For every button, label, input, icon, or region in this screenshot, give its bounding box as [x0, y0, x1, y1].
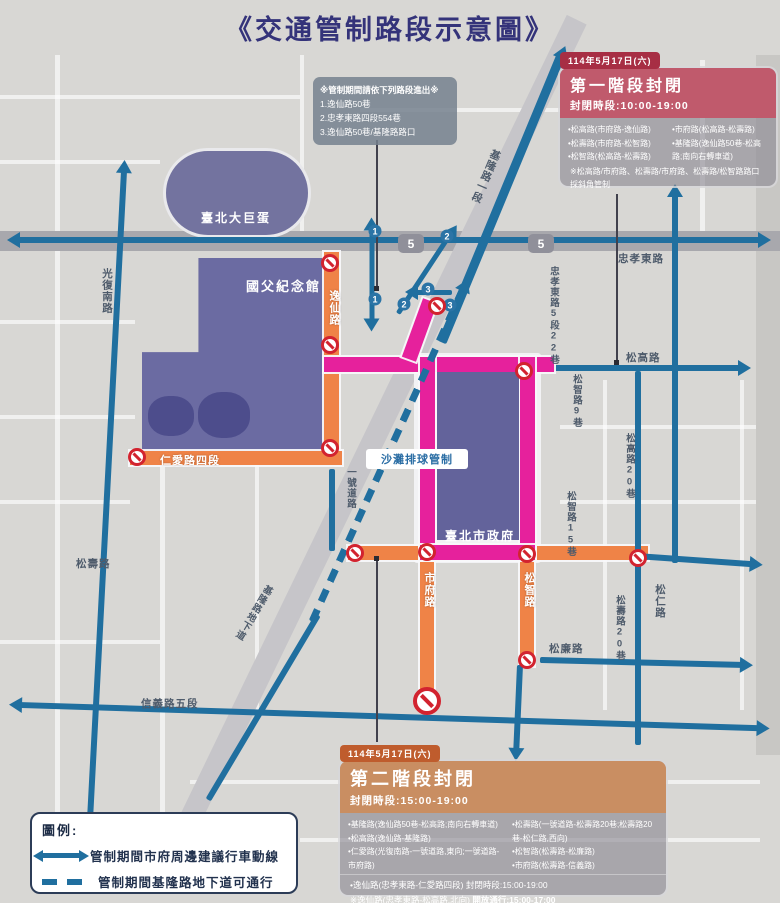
road-label-xinyi5: 信義路五段 [141, 696, 199, 711]
road-label-songshou-west: 松壽路 [76, 556, 111, 571]
road-label-zhongxiao: 忠孝東路 [618, 251, 664, 266]
street-line [0, 500, 130, 504]
no-entry-sign [518, 545, 536, 563]
street-line [160, 460, 165, 860]
phase1-item: •市府路(松高路-松壽路) [672, 123, 768, 137]
no-entry-sign [629, 549, 647, 567]
legend-heading: 圖例: [42, 820, 286, 839]
road-label-yixian: 逸仙路 [326, 290, 342, 326]
route-east-vertical-line [672, 195, 678, 563]
access-note-box: ※管制期間請依下列路段進出※ 1.逸仙路50巷 2.忠孝東路四段554巷 3.逸… [313, 77, 457, 145]
phase1-note: ※松高路/市府路、松壽路/市府路、松壽路/松智路路口採斜角管制 [560, 166, 776, 196]
no-entry-sign [518, 651, 536, 669]
access-badge-1: 1 [369, 225, 382, 238]
legend-box: 圖例: 管制期間市府周邊建議行車動線 管制期間基隆路地下道可通行 [30, 812, 298, 894]
pointer-dot [374, 286, 379, 291]
street-line [0, 415, 135, 419]
street-line [55, 55, 60, 865]
access-badge-1: 1 [369, 293, 382, 306]
road-label-yihao: 一號道路 [343, 467, 357, 509]
no-entry-sign [515, 362, 533, 380]
route-songshou-east-arrow [636, 553, 752, 567]
phase2-item: •松智路(松壽路-松廉路) [512, 845, 658, 859]
memorial-label: 國父紀念館 [246, 276, 321, 295]
dome-label: 臺北大巨蛋 [201, 209, 271, 226]
phase2-item: •松高路(逸仙路-基隆路) [348, 832, 504, 846]
no-entry-sign [428, 297, 446, 315]
closed-road-yixian [324, 252, 339, 458]
phase2-item: •市府路(松壽路-信義路) [512, 859, 658, 873]
access-route-1-arrow [370, 229, 375, 321]
phase2-title: 第二階段封閉 [350, 765, 656, 791]
pointer-line [376, 558, 378, 742]
road-label-shifu: 市府路 [421, 572, 437, 608]
access-note-heading: ※管制期間請依下列路段進出※ [320, 83, 450, 97]
phase1-date-tag: 114年5月17日(六) [560, 52, 660, 69]
page-title: 《交通管制路段示意圖》 [0, 8, 780, 47]
road-label-songzhi: 松智路 [521, 572, 537, 608]
phase1-item: •松智路(松高路-松壽路) [568, 150, 664, 164]
road-label-songgao: 松高路 [626, 350, 661, 365]
street-line [0, 95, 300, 99]
legend-underpass-dash-icon [42, 879, 88, 885]
no-entry-sign [346, 544, 364, 562]
no-entry-sign [413, 687, 441, 715]
route-songzhi-south-arrow [513, 665, 523, 750]
cityhall-label: 臺北市政府 [445, 527, 515, 544]
access-badge-3: 3 [422, 283, 435, 296]
phase1-box: 第一階段封閉 封閉時段:10:00-19:00 •松高路(市府路-逸仙路) •松… [558, 66, 778, 188]
access-note-item: 2.忠孝東路四段554巷 [320, 111, 450, 125]
phase1-time: 封閉時段:10:00-19:00 [570, 98, 766, 113]
phase2-date-tag: 114年5月17日(六) [340, 745, 440, 762]
route-yihao-line [329, 469, 335, 551]
access-note-item: 3.逸仙路50巷/基隆路路口 [320, 125, 450, 139]
phase1-item: •松壽路(市府路-松智路) [568, 137, 664, 151]
road-label-songgao20: 松高路20巷 [622, 433, 636, 499]
phase2-box: 第二階段封閉 封閉時段:15:00-19:00 •基隆路(逸仙路50巷-松高路;… [338, 759, 668, 897]
memorial-pond [148, 396, 194, 436]
road-label-guangfu: 光復南路 [100, 268, 115, 314]
phase2-open-time: 開放通行:15:00-17:00 [472, 895, 555, 903]
street-line [560, 500, 780, 504]
road-label-songren: 松仁路 [653, 584, 668, 619]
street-line [0, 160, 160, 164]
road-label-songzhi15: 松智路15巷 [563, 491, 577, 557]
pointer-dot [374, 556, 379, 561]
street-line [560, 425, 780, 429]
access-badge-2: 2 [398, 298, 411, 311]
no-entry-sign [418, 543, 436, 561]
pointer-line [376, 140, 378, 288]
route-shield-5: 5 [528, 234, 554, 253]
route-songgao-east-arrow [545, 365, 740, 371]
beach-volleyball-control-label: 沙灘排球管制 [366, 449, 468, 469]
phase2-open-prefix: ※逸仙路(忠孝東路-松高路,北向) [350, 895, 472, 903]
phase2-time: 封閉時段:15:00-19:00 [350, 793, 656, 808]
memorial-pond [198, 392, 250, 438]
no-entry-sign [321, 254, 339, 272]
access-badge-2: 2 [441, 230, 454, 243]
pointer-line [616, 194, 618, 362]
road-label-renai4: 仁愛路四段 [160, 452, 220, 468]
legend-underpass-label: 管制期間基隆路地下道可通行 [98, 872, 274, 891]
phase1-item: •基隆路(逸仙路50巷-松高路;南向右轉車道) [672, 137, 768, 164]
no-entry-sign [321, 439, 339, 457]
route-shield-5: 5 [398, 234, 424, 253]
phase2-item: •松壽路(一號道路-松壽路20巷;松壽路20巷-松仁路,西向) [512, 818, 658, 845]
no-entry-sign [321, 336, 339, 354]
phase2-extra: •逸仙路(忠孝東路-仁愛路四段) 封閉時段:15:00-19:00 [350, 878, 656, 892]
road-label-songlian: 松廉路 [549, 641, 584, 656]
road-label-zhongxiao22: 忠孝東路5段22巷 [546, 266, 560, 365]
street-line [0, 640, 160, 644]
traffic-control-map: 1 1 2 2 3 3 5 5 臺北大巨蛋 國父紀念館 臺北市政府 光復南路 忠… [0, 0, 780, 903]
no-entry-sign [128, 448, 146, 466]
phase1-item: •松高路(市府路-逸仙路) [568, 123, 664, 137]
legend-route-arrow-icon [42, 853, 80, 858]
road-label-songzhi9: 松智路9巷 [569, 374, 583, 428]
access-note-item: 1.逸仙路50巷 [320, 97, 450, 111]
legend-route-label: 管制期間市府周邊建議行車動線 [90, 846, 279, 865]
closed-road-songzhi-magenta [520, 357, 535, 560]
route-zhongxiao-line [18, 237, 760, 243]
phase2-item: •仁愛路(光復南路-一號道路,東向;一號道路-市府路) [348, 845, 504, 872]
phase2-item: •基隆路(逸仙路50巷-松高路;南向右轉車道) [348, 818, 504, 832]
phase1-title: 第一階段封閉 [570, 72, 766, 96]
road-label-songshou20: 松壽路20巷 [612, 595, 626, 661]
pointer-dot [614, 360, 619, 365]
phase2-open-note: ※逸仙路(忠孝東路-松高路,北向) 開放通行:15:00-17:00 [350, 893, 656, 903]
route-xinyi-line [20, 702, 759, 731]
